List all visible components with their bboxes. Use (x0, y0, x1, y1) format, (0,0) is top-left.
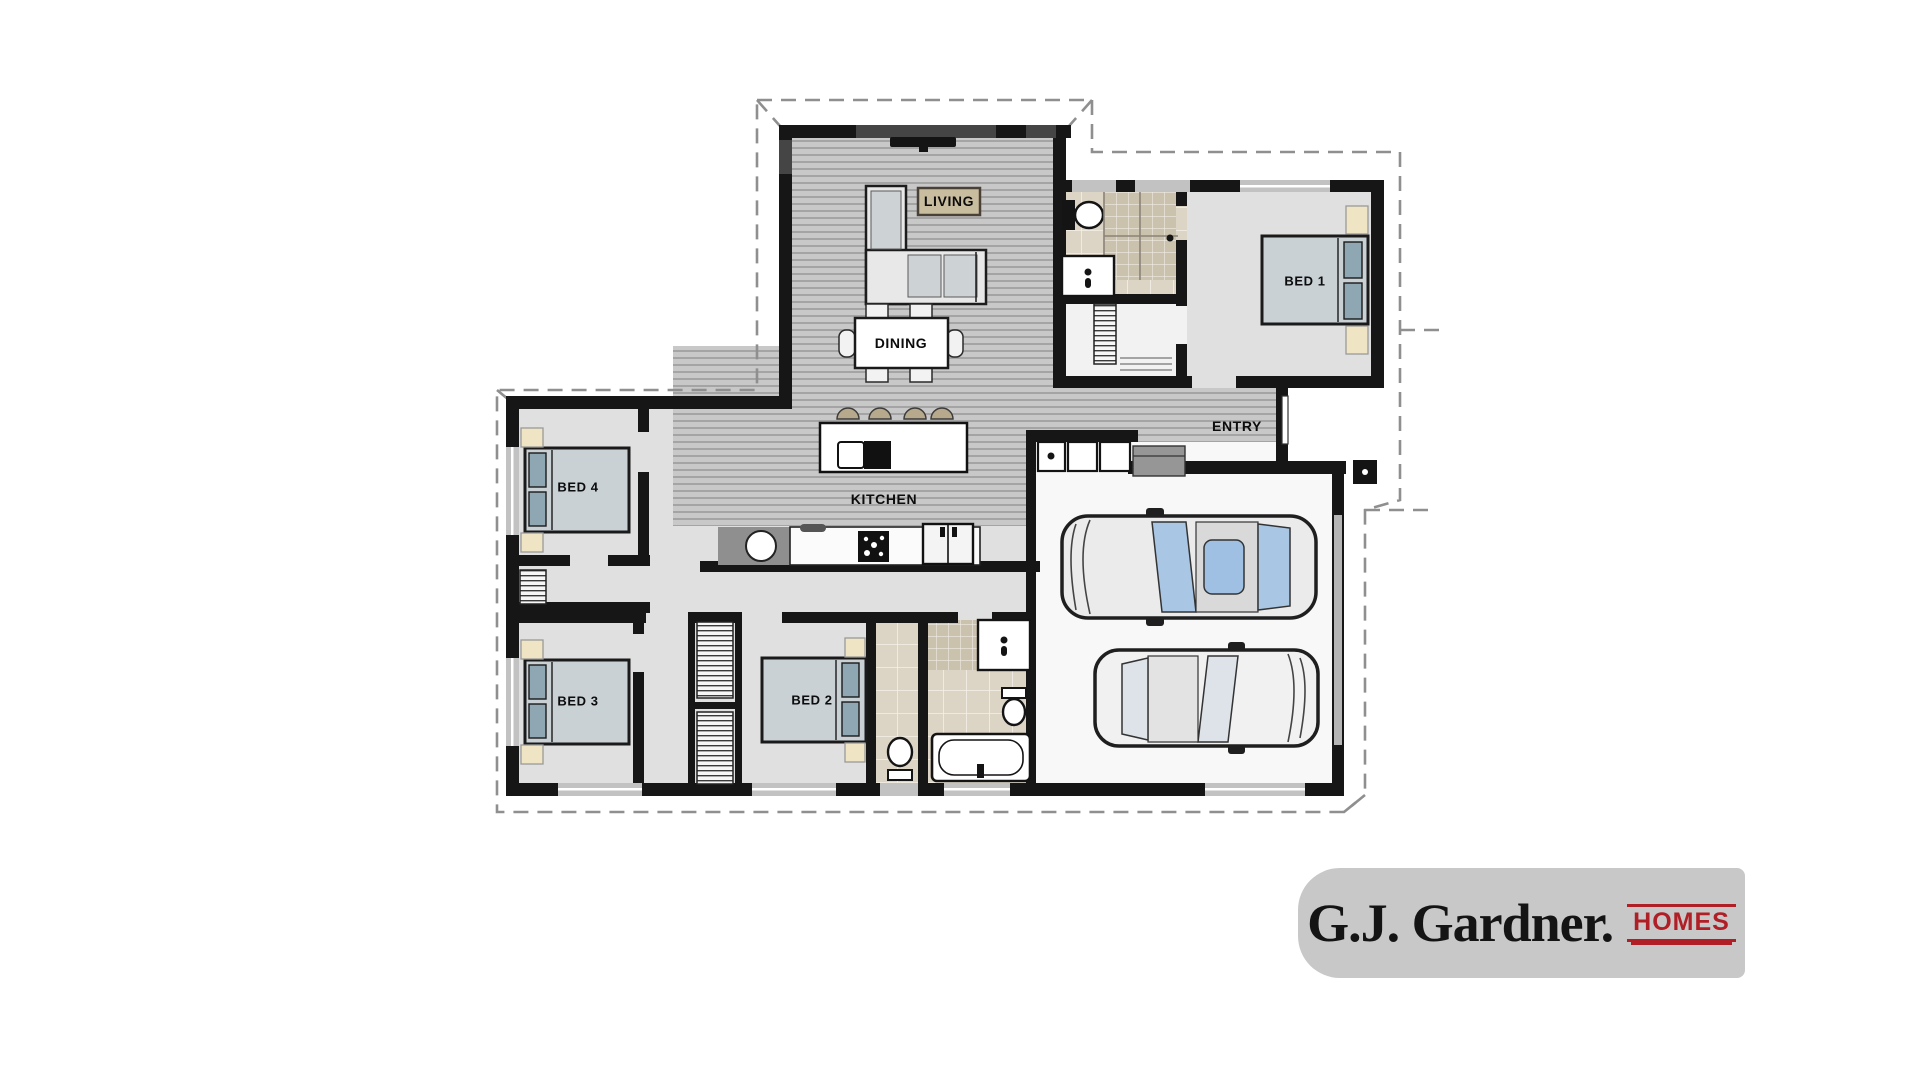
garage-step (1133, 446, 1185, 476)
builder-logo-brand-text: G.J. Gardner. (1307, 896, 1613, 950)
island-sink-icon (838, 442, 864, 468)
bed1-label: BED 1 (1284, 274, 1325, 289)
ensuite-vanity-icon (1062, 256, 1114, 296)
sunroof (1204, 540, 1244, 594)
fridge-icon (923, 524, 973, 564)
bed2-robe-icon (697, 622, 733, 698)
shower-head-icon (1167, 235, 1174, 242)
garage-door (1334, 515, 1342, 745)
porch-floor (1286, 388, 1372, 462)
rear-window (1258, 524, 1290, 610)
car-1-icon (1062, 508, 1316, 626)
car-2-icon (1095, 642, 1318, 754)
rear-window (1122, 658, 1148, 740)
letterbox-icon (1353, 460, 1377, 484)
ensuite-toilet-icon (1062, 200, 1103, 230)
oven-icon (858, 531, 889, 562)
bed3-label: BED 3 (557, 694, 598, 709)
bed4-robe-icon (520, 570, 546, 604)
bathroom-vanity-icon (978, 620, 1030, 670)
cooktop-icon (864, 441, 891, 469)
front-door-leaf (1282, 396, 1288, 444)
round-sink-icon (746, 531, 776, 561)
builder-logo-homes-text: HOMES (1627, 904, 1736, 942)
builder-logo: G.J. Gardner. HOMES (1298, 868, 1745, 978)
bathroom-toilet-icon (1002, 688, 1026, 725)
bed2-label: BED 2 (791, 693, 832, 708)
bathtub-icon (932, 734, 1030, 781)
living-window (856, 125, 996, 138)
tv-icon (890, 137, 956, 147)
laundry-tub-icon (1038, 442, 1065, 471)
bed3-robe-icon (697, 712, 733, 784)
washing-machine-icon (1068, 442, 1097, 471)
floor-plan-page: LIVING DINING KITCHEN ENTRY BED 1 BED 2 … (0, 0, 1920, 1080)
living-label: LIVING (924, 193, 974, 209)
walk-in-robe-rail-icon (1094, 304, 1116, 364)
dryer-icon (1100, 442, 1130, 471)
walk-in-robe-floor (1062, 302, 1178, 378)
entry-label: ENTRY (1212, 418, 1262, 434)
bed4-label: BED 4 (557, 480, 598, 495)
wc-toilet-icon (888, 738, 912, 780)
kitchen-label: KITCHEN (851, 491, 917, 507)
dining-label: DINING (875, 335, 928, 351)
